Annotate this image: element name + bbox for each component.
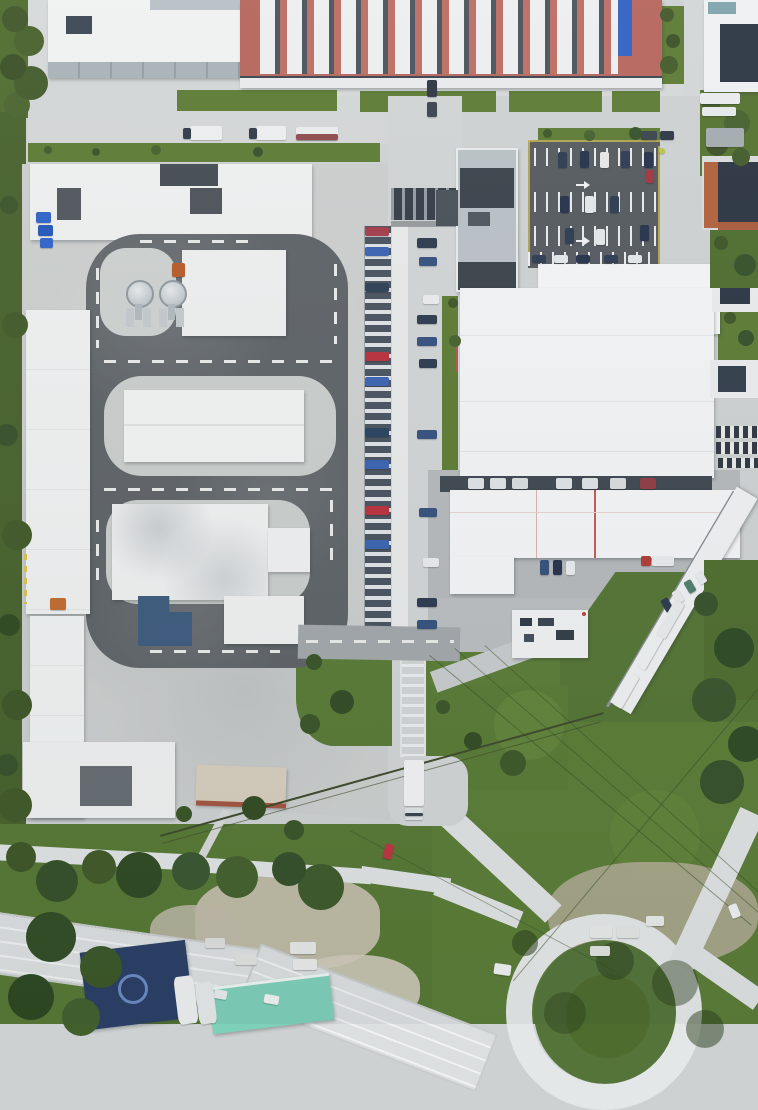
parked-car <box>365 227 389 236</box>
lot-car <box>554 255 568 263</box>
yard-car <box>540 560 549 575</box>
dock-trailer <box>640 478 656 489</box>
lot-car <box>621 151 630 168</box>
van <box>706 128 744 147</box>
container <box>205 938 225 948</box>
machine <box>50 598 66 610</box>
car <box>427 102 437 117</box>
aerial-photo: { "scene": { "type": "aerial-drone-photo… <box>0 0 758 1024</box>
truck <box>702 107 736 116</box>
parked-car <box>365 506 389 515</box>
lot-car <box>646 170 654 183</box>
truck <box>256 126 286 140</box>
truck <box>190 126 222 140</box>
container <box>646 916 664 926</box>
parked-car <box>423 558 439 567</box>
lot-car <box>644 152 653 168</box>
parked-car <box>365 428 389 437</box>
lot-car <box>532 255 546 263</box>
truck-cab <box>249 128 257 139</box>
machine <box>172 263 185 277</box>
container <box>290 942 316 954</box>
parked-car <box>419 508 437 517</box>
lot-car <box>596 229 605 245</box>
container <box>590 926 612 938</box>
parked-car <box>365 352 389 361</box>
lot-car <box>585 196 594 213</box>
dock-trailer <box>556 478 572 489</box>
tank <box>173 975 199 1025</box>
lot-car <box>560 196 569 213</box>
yard-car <box>553 560 562 575</box>
yard-car <box>683 579 696 594</box>
parked-car <box>419 359 437 368</box>
lot-car <box>600 152 609 168</box>
lot-car <box>610 196 619 213</box>
parked-car <box>365 377 389 386</box>
parked-car <box>417 315 437 324</box>
container <box>617 926 639 938</box>
car <box>641 131 657 140</box>
bin <box>40 238 53 248</box>
car <box>427 80 437 97</box>
tank <box>195 981 218 1025</box>
lot-car <box>558 152 567 168</box>
parked-car <box>417 337 437 346</box>
parked-car <box>365 540 389 549</box>
van <box>263 994 279 1005</box>
parked-car <box>419 257 437 266</box>
lot-car <box>604 255 618 263</box>
van <box>493 963 511 976</box>
dot <box>659 148 665 154</box>
box-truck-windshield <box>405 813 423 816</box>
truck <box>700 93 740 104</box>
lot-car <box>580 151 589 168</box>
yard-car <box>566 561 575 575</box>
dock-trailer <box>490 478 506 489</box>
car <box>728 903 742 919</box>
dock-trailer <box>582 478 598 489</box>
lot-car <box>628 255 642 263</box>
dock-trailer <box>512 478 528 489</box>
parked-car <box>417 238 437 248</box>
car <box>660 131 674 140</box>
car <box>213 989 227 1000</box>
truck-trailer <box>652 556 674 566</box>
parked-car <box>417 430 437 439</box>
parked-car <box>365 247 389 256</box>
bin <box>38 225 53 236</box>
lot-car <box>576 255 590 263</box>
parked-car <box>417 598 437 607</box>
lot-car <box>640 225 649 241</box>
parked-car <box>365 283 389 292</box>
dock-trailer <box>610 478 626 489</box>
truck-cab <box>183 128 191 139</box>
parked-car <box>423 295 439 304</box>
dock-trailer <box>468 478 484 489</box>
car <box>382 843 395 860</box>
parked-car <box>365 460 389 469</box>
sprite-layer <box>0 0 758 1024</box>
container <box>293 959 317 970</box>
truck-cab <box>641 556 651 566</box>
container <box>235 955 257 965</box>
container <box>590 946 610 956</box>
lot-car <box>565 228 574 244</box>
parked-car <box>417 620 437 629</box>
trailer <box>613 673 640 709</box>
bin <box>36 212 51 223</box>
truck-stripe <box>296 134 338 140</box>
box-truck-body <box>404 760 424 806</box>
yard-car <box>694 570 707 585</box>
